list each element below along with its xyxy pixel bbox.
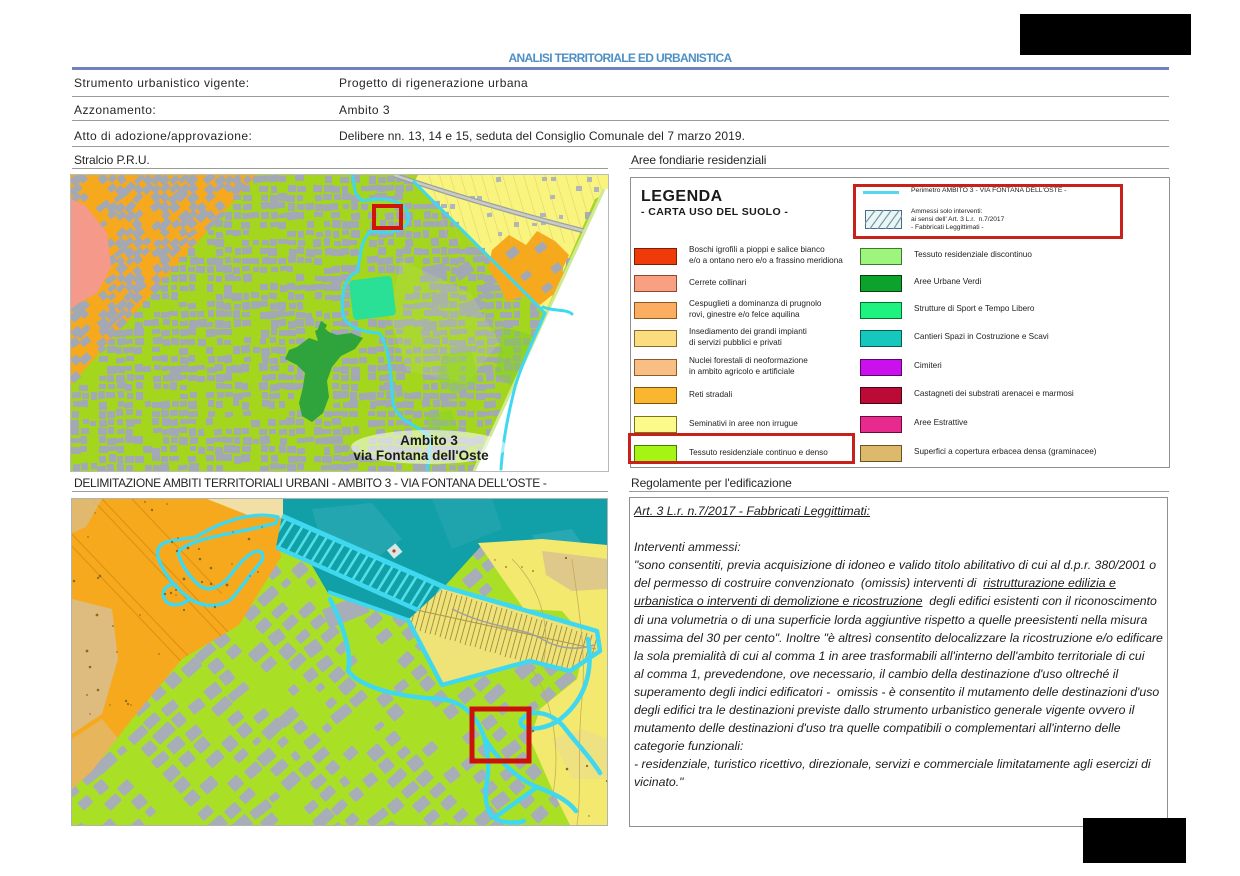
svg-text:Ambito 3: Ambito 3 [400,433,458,448]
svg-text:via Fontana dell'Oste: via Fontana dell'Oste [353,448,489,463]
